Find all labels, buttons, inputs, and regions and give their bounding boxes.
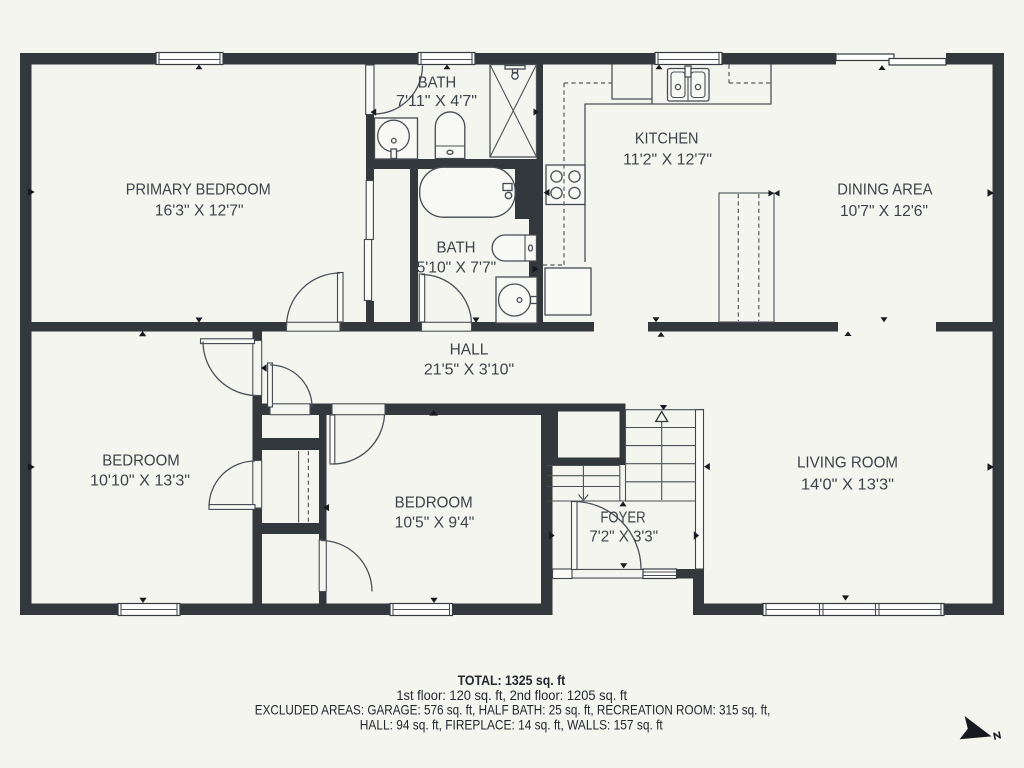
svg-text:DINING AREA: DINING AREA	[837, 182, 933, 199]
svg-text:10'10" X 13'3": 10'10" X 13'3"	[90, 473, 190, 490]
svg-text:KITCHEN: KITCHEN	[635, 131, 699, 148]
svg-text:21'5" X 3'10": 21'5" X 3'10"	[424, 362, 514, 379]
svg-text:BEDROOM: BEDROOM	[395, 495, 473, 512]
svg-text:5'10" X 7'7": 5'10" X 7'7"	[417, 260, 497, 277]
svg-text:14'0" X 13'3": 14'0" X 13'3"	[801, 477, 894, 494]
svg-text:16'3" X 12'7": 16'3" X 12'7"	[155, 203, 244, 220]
svg-text:1st floor: 120 sq. ft, 2nd flo: 1st floor: 120 sq. ft, 2nd floor: 1205 s…	[396, 688, 627, 703]
svg-text:BEDROOM: BEDROOM	[102, 453, 180, 470]
svg-text:FOYER: FOYER	[600, 510, 645, 527]
svg-text:BATH: BATH	[418, 75, 457, 92]
svg-text:11'2" X 12'7": 11'2" X 12'7"	[623, 152, 712, 169]
svg-text:BATH: BATH	[437, 240, 476, 257]
svg-text:7'2" X 3'3": 7'2" X 3'3"	[589, 529, 658, 546]
svg-text:TOTAL: 1325 sq. ft: TOTAL: 1325 sq. ft	[458, 673, 566, 688]
svg-text:PRIMARY BEDROOM: PRIMARY BEDROOM	[126, 182, 271, 199]
svg-text:10'7" X 12'6": 10'7" X 12'6"	[840, 203, 928, 220]
svg-text:LIVING ROOM: LIVING ROOM	[797, 455, 898, 472]
svg-text:7'11" X 4'7": 7'11" X 4'7"	[396, 93, 477, 110]
svg-text:10'5" X 9'4": 10'5" X 9'4"	[395, 515, 475, 532]
svg-text:HALL: 94 sq. ft, FIREPLACE: 14: HALL: 94 sq. ft, FIREPLACE: 14 sq. ft, W…	[360, 717, 663, 732]
svg-text:HALL: HALL	[450, 342, 489, 359]
svg-text:EXCLUDED AREAS: GARAGE: 576 sq: EXCLUDED AREAS: GARAGE: 576 sq. ft, HALF…	[255, 703, 771, 718]
